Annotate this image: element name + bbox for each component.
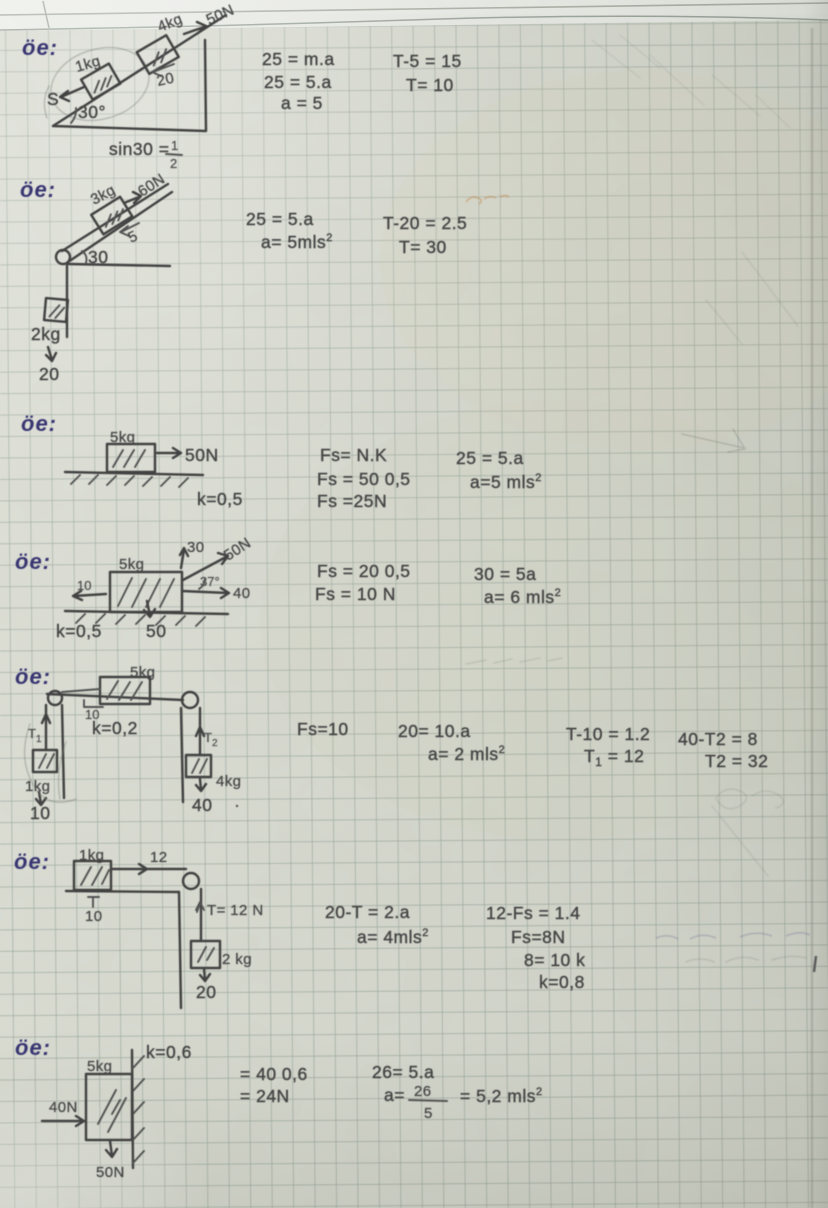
svg-text:öe:: öe: [22,35,58,60]
svg-text:10: 10 [77,578,91,593]
svg-text:= 24N: = 24N [240,1086,290,1106]
svg-text:a=5 mls2: a=5 mls2 [470,472,542,492]
svg-text:öe:: öe: [21,411,57,436]
svg-text:öe:: öe: [14,849,50,874]
svg-text:a= 5mls2: a= 5mls2 [261,232,333,252]
svg-text:a= 2 mls2: a= 2 mls2 [428,744,505,764]
svg-text:T= 12 N: T= 12 N [207,902,264,919]
svg-text:2: 2 [170,156,177,171]
svg-text:Fs =25N: Fs =25N [317,491,387,511]
svg-text:5kg: 5kg [87,1058,112,1075]
svg-text:30 = 5a: 30 = 5a [474,564,536,584]
svg-text:10: 10 [85,908,103,925]
svg-text:50: 50 [146,621,166,641]
svg-text:25 = m.a: 25 = m.a [262,49,335,69]
svg-text:Fs = 50 0,5: Fs = 50 0,5 [317,469,411,489]
svg-text:12: 12 [150,849,168,866]
svg-text:T2 = 32: T2 = 32 [705,751,768,771]
svg-text:40: 40 [192,795,212,815]
svg-text:20: 20 [155,70,176,90]
svg-text:sin30 =: sin30 = [109,139,169,159]
svg-text:S: S [47,89,59,109]
svg-text:12-Fs = 1.4: 12-Fs = 1.4 [486,903,581,923]
svg-text:k=0,5: k=0,5 [197,489,243,509]
svg-text:4kg: 4kg [216,773,241,790]
svg-text:k=0,2: k=0,2 [92,718,138,738]
svg-text:Fs=8N: Fs=8N [511,927,566,947]
svg-text:20-T = 2.a: 20-T = 2.a [325,902,410,922]
svg-text:Fs = 10 N: Fs = 10 N [315,584,396,604]
svg-text:k=0,8: k=0,8 [539,972,585,992]
svg-text:20: 20 [39,364,59,384]
svg-text:Fs= N.K: Fs= N.K [320,445,387,465]
svg-text:= 40 0,6: = 40 0,6 [240,1064,308,1084]
svg-text:öe:: öe: [15,549,51,574]
svg-text:30: 30 [187,539,205,556]
svg-text:25 = 5.a: 25 = 5.a [456,448,524,468]
svg-text:26: 26 [414,1083,432,1100]
svg-text:T-20 = 2.5: T-20 = 2.5 [383,213,467,233]
svg-text:5kg: 5kg [130,664,155,681]
svg-text:a= 6 mls2: a= 6 mls2 [484,587,561,607]
svg-text:T= 30: T= 30 [399,237,447,257]
svg-text:20= 10.a: 20= 10.a [398,721,471,741]
svg-text:50N: 50N [185,445,219,465]
svg-text:25 = 5.a: 25 = 5.a [246,209,314,229]
svg-text:26= 5.a: 26= 5.a [372,1062,434,1082]
svg-text:10: 10 [30,803,50,823]
svg-text:a= 4mls2: a= 4mls2 [357,927,429,947]
svg-text:30: 30 [88,247,108,267]
svg-text:T-5 = 15: T-5 = 15 [393,51,462,71]
svg-text:= 5,2 mls2: = 5,2 mls2 [460,1086,543,1106]
svg-text:40-T2 = 8: 40-T2 = 8 [678,729,758,749]
svg-text:a = 5: a = 5 [281,93,323,113]
svg-text:25 = 5.a: 25 = 5.a [264,72,332,92]
svg-text:2kg: 2kg [31,324,61,344]
svg-text:30°: 30° [78,102,106,122]
svg-text:a=: a= [384,1085,405,1105]
svg-text:40N: 40N [49,1099,78,1116]
svg-text:T1 = 12: T1 = 12 [584,746,644,769]
svg-text:öe:: öe: [15,664,51,689]
svg-text:1: 1 [171,138,178,153]
svg-text:40: 40 [233,585,251,602]
svg-text:2 kg: 2 kg [222,951,252,968]
svg-text:T= 10: T= 10 [406,75,454,95]
svg-text:5: 5 [424,1105,433,1122]
svg-text:5kg: 5kg [119,556,144,573]
svg-text:50N: 50N [96,1164,125,1181]
svg-text:8= 10 k: 8= 10 k [524,950,585,970]
svg-text:20: 20 [196,982,216,1002]
svg-text:öe:: öe: [20,177,56,202]
svg-text:öe:: öe: [15,1035,51,1060]
svg-text:k=0,6: k=0,6 [146,1042,192,1062]
svg-text:T-10 = 1.2: T-10 = 1.2 [566,724,650,744]
svg-text:Fs=10: Fs=10 [297,719,349,739]
svg-text:Fs = 20 0,5: Fs = 20 0,5 [317,561,411,581]
svg-text:k=0,5: k=0,5 [56,621,102,641]
